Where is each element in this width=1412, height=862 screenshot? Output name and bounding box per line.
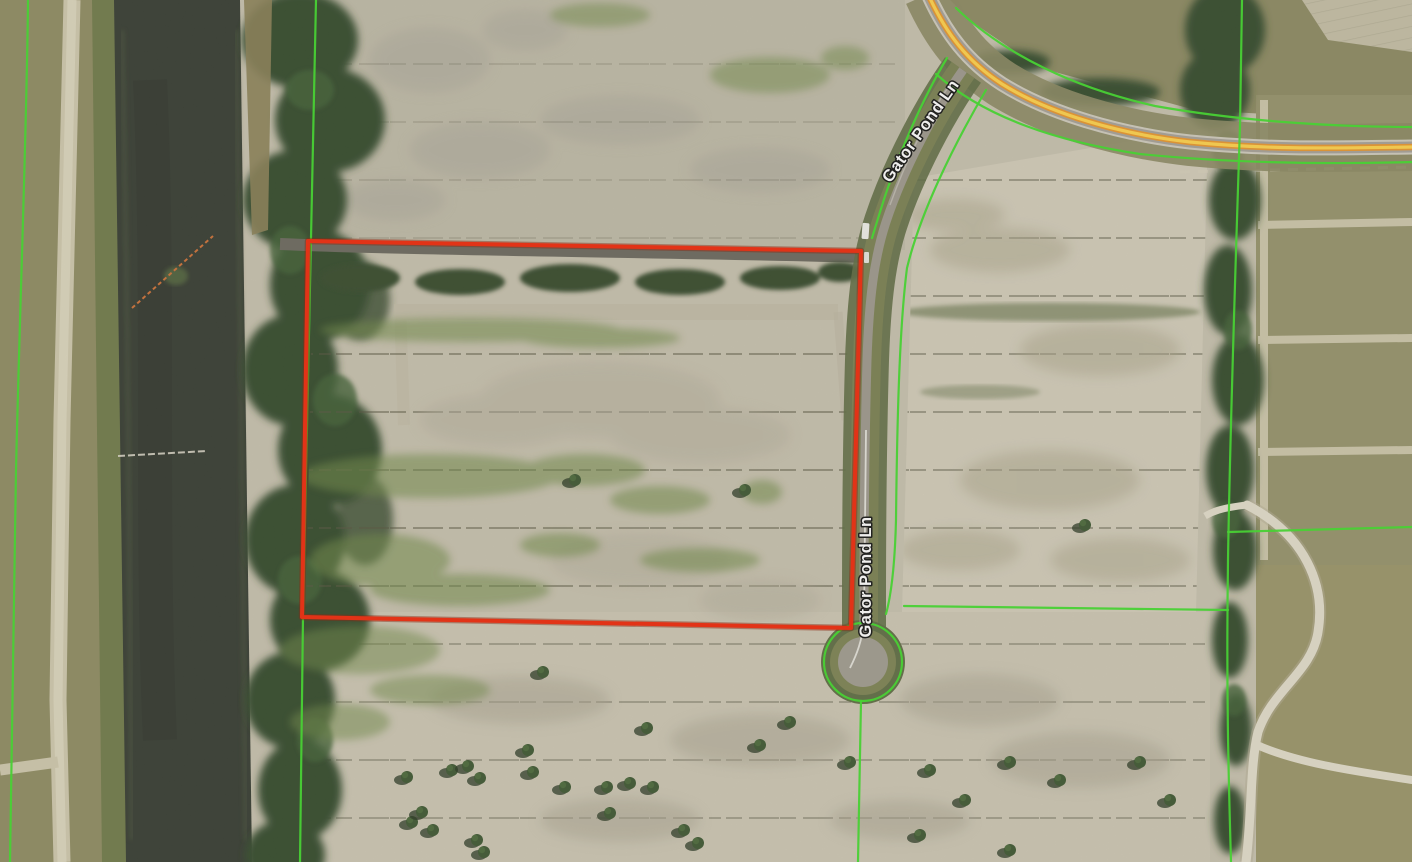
map-canvas[interactable]: Gator Pond Ln Gator Pond Ln — [0, 0, 1412, 862]
aerial-map: Gator Pond Ln Gator Pond Ln — [0, 0, 1412, 862]
photo-grain-overlay — [0, 0, 1412, 862]
